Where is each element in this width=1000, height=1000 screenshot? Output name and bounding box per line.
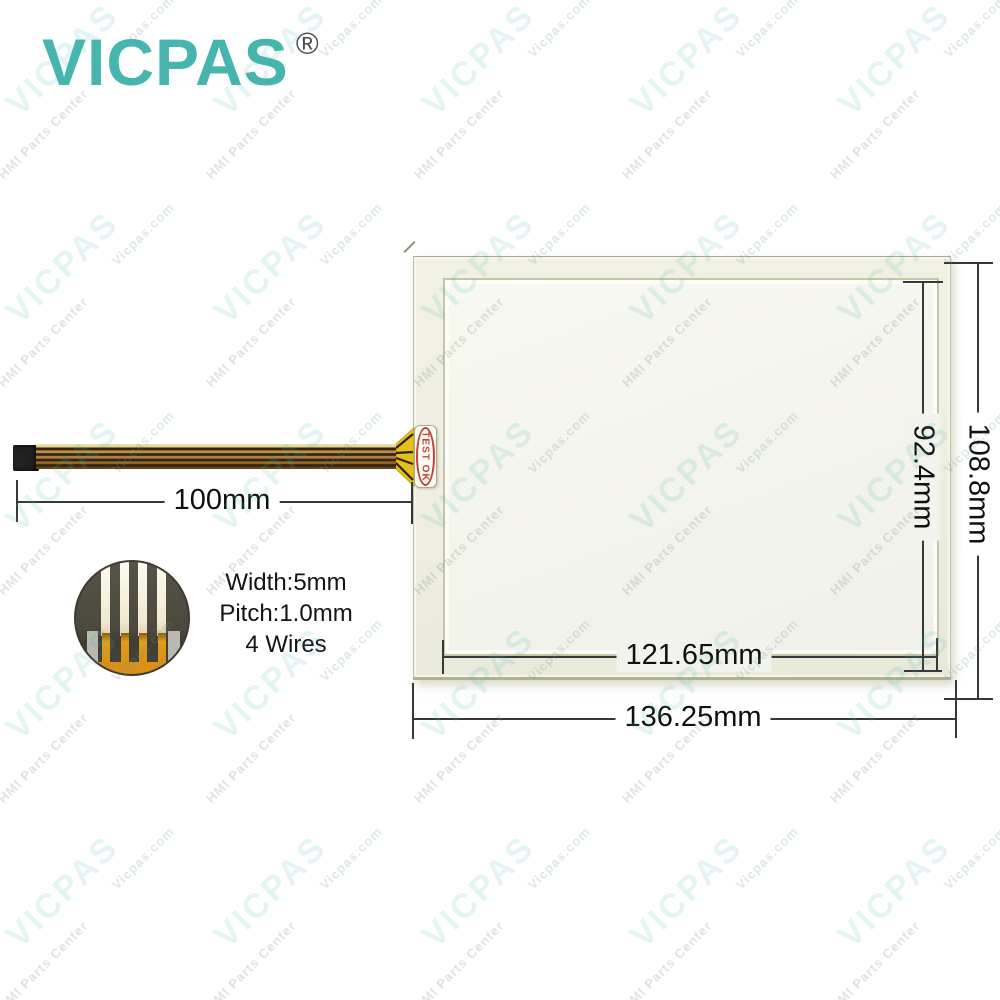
dim-overall-width: 136.25mm [615, 701, 770, 734]
test-ok-oval: TEST OK [416, 427, 435, 486]
dim-overall-height: 108.8mm [962, 413, 995, 556]
watermark-text: HMI Parts Center [203, 918, 299, 1000]
watermark-text: Vicpas.com [941, 824, 1000, 893]
watermark-text: VICPAS [207, 828, 335, 956]
dim-outer-height-tick-bottom [944, 698, 993, 700]
dim-view-width-tick-right [936, 638, 938, 672]
brand-logo: VICPAS ® [42, 24, 319, 100]
watermark-text: HMI Parts Center [827, 86, 923, 182]
watermark-text: Vicpas.com [317, 0, 386, 60]
wire-contact [120, 560, 129, 636]
dim-viewing-width: 121.65mm [616, 639, 771, 672]
watermark-text: Vicpas.com [109, 824, 178, 893]
spec-pitch: Pitch:1.0mm [196, 598, 376, 629]
dim-cable-tick-right [411, 482, 413, 524]
dim-view-height-tick-bottom [904, 670, 942, 672]
wire-contact [138, 560, 147, 636]
watermark-text: HMI Parts Center [0, 502, 91, 598]
watermark-text: Vicpas.com [941, 0, 1000, 60]
watermark-text: VICPAS [0, 204, 127, 332]
product-image: VICPASHMI Parts CenterVicpas.comVICPASHM… [0, 0, 1000, 1000]
watermark-text: Vicpas.com [109, 200, 178, 269]
registered-trademark-icon: ® [296, 26, 319, 62]
watermark-text: HMI Parts Center [203, 86, 299, 182]
dim-view-width-tick-left [442, 640, 444, 674]
watermark-text: HMI Parts Center [0, 86, 91, 182]
flex-ribbon-cable [36, 444, 397, 469]
dim-outer-height-tick-top [944, 262, 993, 264]
connector-edge [168, 631, 180, 663]
wire-contact [157, 560, 166, 636]
watermark-text: VICPAS [831, 828, 959, 956]
dim-viewing-height: 92.4mm [907, 414, 940, 541]
watermark-text: HMI Parts Center [203, 710, 299, 806]
cable-fan [396, 425, 416, 489]
connector-edge [87, 631, 98, 665]
watermark-text: HMI Parts Center [0, 710, 91, 806]
dim-outer-width-tick-left [412, 683, 414, 739]
watermark-text: VICPAS [623, 828, 751, 956]
wire-contact [101, 560, 110, 636]
touch-panel [413, 256, 951, 680]
watermark-text: HMI Parts Center [411, 918, 507, 1000]
spec-wires: 4 Wires [196, 629, 376, 660]
watermark-text: HMI Parts Center [827, 918, 923, 1000]
watermark-text: HMI Parts Center [0, 294, 91, 390]
spec-width: Width:5mm [196, 567, 376, 598]
panel-corner-tick [403, 241, 415, 253]
watermark-text: HMI Parts Center [411, 86, 507, 182]
watermark-text: Vicpas.com [733, 0, 802, 60]
watermark-text: HMI Parts Center [619, 86, 715, 182]
watermark-text: VICPAS [415, 828, 543, 956]
brand-logo-text: VICPAS [42, 24, 289, 100]
watermark-text: VICPAS [415, 0, 543, 124]
watermark-text: VICPAS [0, 412, 127, 540]
watermark-text: HMI Parts Center [0, 918, 91, 1000]
touch-panel-glass [443, 278, 939, 656]
dim-cable-length: 100mm [165, 484, 280, 517]
test-ok-text: TEST OK [420, 431, 431, 481]
dim-cable-tick-left [16, 480, 18, 522]
watermark-text: VICPAS [207, 204, 335, 332]
watermark-text: VICPAS [207, 412, 335, 540]
watermark-text: HMI Parts Center [827, 710, 923, 806]
test-ok-label: TEST OK [414, 425, 437, 488]
watermark-text: HMI Parts Center [619, 918, 715, 1000]
connector-base [76, 662, 188, 674]
watermark-text: Vicpas.com [733, 824, 802, 893]
watermark-text: Vicpas.com [317, 824, 386, 893]
watermark-text: VICPAS [0, 828, 127, 956]
dim-view-height-tick-top [903, 281, 943, 283]
connector-specs: Width:5mm Pitch:1.0mm 4 Wires [196, 567, 376, 660]
watermark-text: HMI Parts Center [411, 710, 507, 806]
watermark-text: Vicpas.com [525, 824, 594, 893]
watermark-text: HMI Parts Center [203, 294, 299, 390]
watermark-text: VICPAS [831, 0, 959, 124]
watermark-text: Vicpas.com [317, 200, 386, 269]
dim-outer-width-tick-right [955, 680, 957, 738]
watermark-text: VICPAS [623, 0, 751, 124]
connector-detail-inset [74, 560, 190, 676]
watermark-text: Vicpas.com [525, 0, 594, 60]
